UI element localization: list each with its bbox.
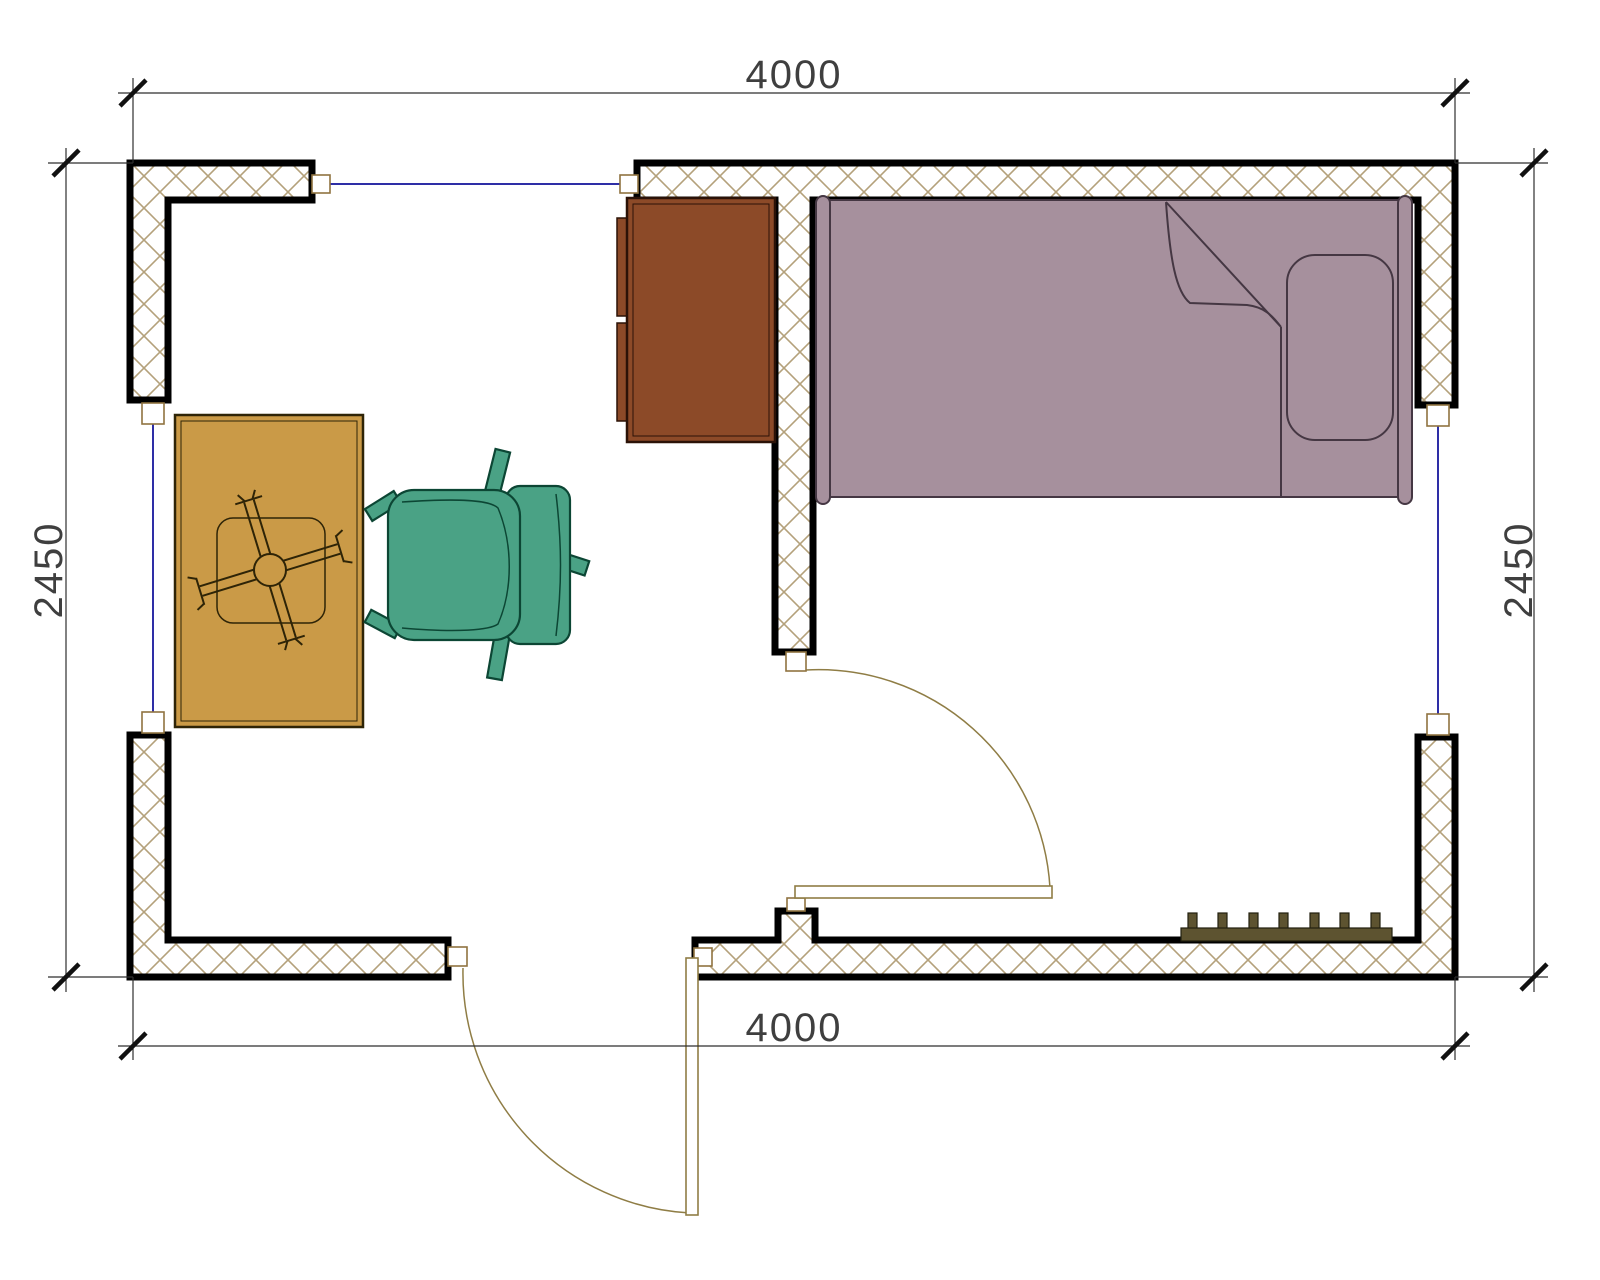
table-base-hub [254,554,286,586]
interior-door-jamb [787,898,805,911]
table [169,415,371,727]
interior-door [786,652,1052,911]
bed-pillow [1287,255,1393,440]
window-frame-box [620,175,638,193]
interior-door-swing-arc [806,670,1050,888]
radiator-body [1181,928,1392,941]
window-frame-box [142,712,164,733]
bed [816,196,1412,504]
window-frame-box [1427,405,1449,426]
exterior-door-jamb [448,947,467,966]
dimension-label-right: 2450 [1497,522,1541,619]
dimension-label-left: 2450 [27,522,71,619]
dresser-body [627,198,775,442]
exterior-door-leaf [686,958,698,1215]
wall-bottom-left [130,735,448,977]
bed-head-rail [1398,196,1412,504]
dimension-label-top: 4000 [746,53,843,97]
dimension-label-bottom: 4000 [746,1006,843,1050]
dresser [617,198,775,442]
interior-door-leaf [795,886,1052,898]
wall-top-left [130,163,312,400]
exterior-door-swing-arc [463,968,690,1213]
bed-foot-rail [816,196,830,504]
floor-plan-page: 4000 4000 2450 2450 [0,0,1600,1280]
office-chair [365,449,590,680]
exterior-door [448,947,712,1215]
radiator [1181,913,1392,941]
window-frame-box [312,175,330,193]
window-frame-box [142,403,164,424]
window-frame-box [1427,714,1449,735]
floor-plan-canvas: 4000 4000 2450 2450 [0,0,1600,1280]
interior-door-jamb [786,652,806,671]
